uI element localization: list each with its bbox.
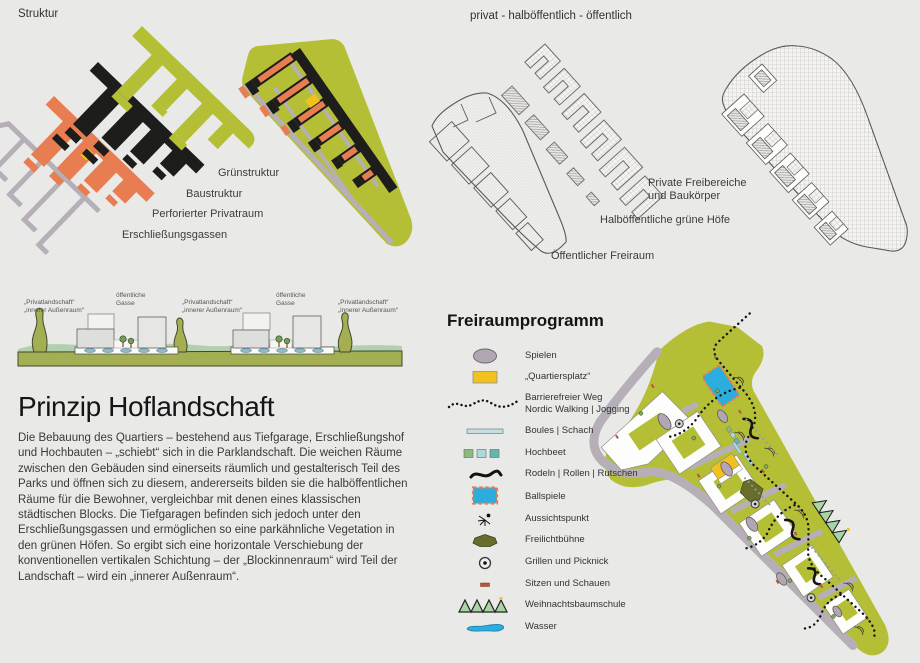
section-drawing [18, 308, 402, 366]
struktur-combined-wedge [238, 39, 412, 246]
label-private-freibereiche: Private Freibereiche und Baukörper [648, 177, 746, 203]
struktur-title: Struktur [18, 8, 58, 20]
legend-row: Grillen und Picknick [447, 551, 665, 573]
rodeln-icon [447, 464, 523, 484]
legend-label: Rodeln | Rollen | Rutschen [525, 468, 638, 480]
section-label-gasse-1: öffentliche Gasse [116, 292, 146, 309]
weihnachtsbaumschule-icon [447, 595, 523, 615]
legend-row: Spielen [447, 345, 665, 367]
legend-label: Spielen [525, 350, 557, 362]
struktur-diagram [0, 26, 412, 259]
quartiersplatz-icon [447, 367, 523, 387]
label-perforierter-privatraum: Perforierter Privatraum [152, 208, 263, 221]
legend-row: „Quartiersplatz“ [447, 367, 665, 389]
legend-row: Freilichtbühne [447, 530, 665, 552]
hochbeet-icon [447, 443, 523, 463]
legend-label: Freilichtbühne [525, 534, 585, 546]
grillen-icon [447, 552, 523, 572]
section-label-privat-1: „Privatlandschaft“ „innerer Außenraum“ [24, 299, 84, 316]
legend-label: Wasser [525, 621, 557, 633]
freiraumprogramm-title: Freiraumprogramm [447, 311, 604, 331]
barrierefreier-weg-icon [447, 393, 523, 415]
legend-row: Wasser [447, 616, 665, 638]
prinzip-body-text: Die Bebauung des Quartiers – bestehend a… [18, 431, 416, 585]
privacy-title: privat - halböffentlich - öffentlich [470, 10, 632, 22]
section-label-gasse-2: öffentliche Gasse [276, 292, 306, 309]
legend-label: „Quartiersplatz“ [525, 371, 590, 383]
label-gruenstruktur: Grünstruktur [218, 167, 279, 180]
private-baukoerper-wedge [717, 46, 908, 251]
presentation-board: Struktur Grünstruktur Baustruktur Perfor… [0, 0, 920, 663]
freiraum-legend: Spielen „Quartiersplatz“ Barrierefreier … [447, 345, 665, 638]
legend-label: Hochbeet [525, 447, 566, 459]
legend-label: Sitzen und Schauen [525, 578, 610, 590]
section-label-privat-3: „Privatlandschaft“ „innerer Außenraum“ [338, 299, 398, 316]
legend-row: Rodeln | Rollen | Rutschen [447, 463, 665, 485]
legend-label: Barrierefreier Weg Nordic Walking | Jogg… [525, 392, 630, 416]
sitzen-icon [447, 574, 523, 594]
label-erschliessungsgassen: Erschließungsgassen [122, 229, 227, 242]
legend-row: Sitzen und Schauen [447, 573, 665, 595]
boules-icon [447, 421, 523, 441]
section-label-privat-2: „Privatlandschaft“ „innerer Außenraum“ [182, 299, 242, 316]
label-halboeffentliche-hoefe: Halböffentliche grüne Höfe [600, 214, 730, 227]
wasser-icon [447, 617, 523, 637]
legend-label: Aussichtspunkt [525, 513, 589, 525]
aussichtspunkt-icon [447, 509, 523, 529]
legend-row: Weihnachtsbaumschule [447, 594, 665, 616]
legend-label: Grillen und Picknick [525, 556, 608, 568]
legend-row: Barrierefreier Weg Nordic Walking | Jogg… [447, 388, 665, 420]
freilichtbuehne-icon [447, 530, 523, 550]
legend-row: Hochbeet [447, 442, 665, 464]
spielen-icon [447, 346, 523, 366]
ballspiele-icon [447, 485, 523, 507]
legend-row: Ballspiele [447, 485, 665, 508]
legend-label: Weihnachtsbaumschule [525, 599, 626, 611]
oeffentlicher-freiraum-wedge [429, 93, 566, 253]
label-oeffentlicher-freiraum: Öffentlicher Freiraum [551, 250, 654, 263]
legend-row: Aussichtspunkt [447, 508, 665, 530]
legend-label: Ballspiele [525, 491, 566, 503]
legend-label: Boules | Schach [525, 425, 593, 437]
label-baustruktur: Baustruktur [186, 188, 242, 201]
prinzip-heading: Prinzip Hoflandschaft [18, 391, 274, 423]
legend-row: Boules | Schach [447, 420, 665, 442]
